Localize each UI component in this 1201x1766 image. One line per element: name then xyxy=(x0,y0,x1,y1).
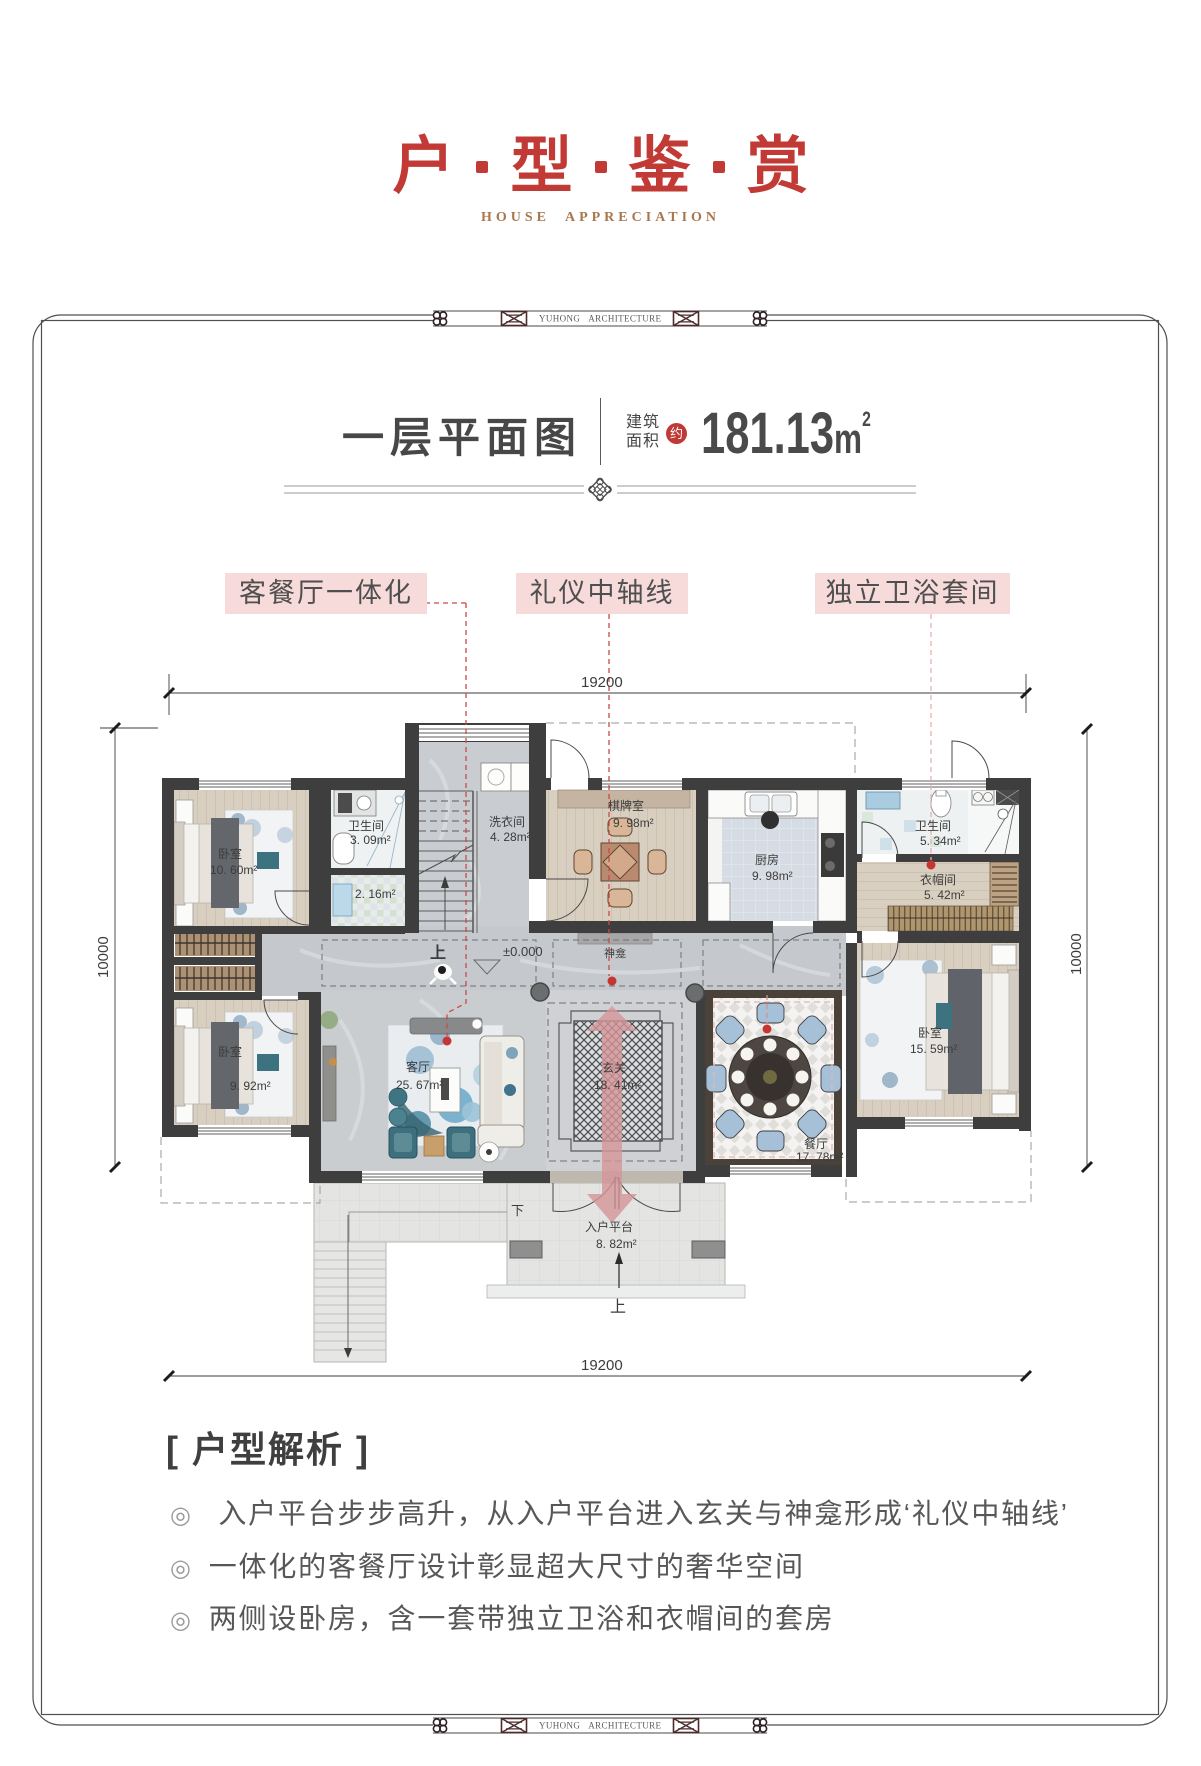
svg-text:餐厅: 餐厅 xyxy=(804,1136,828,1151)
svg-text:9. 92m²: 9. 92m² xyxy=(230,1079,271,1093)
svg-text:衣帽间: 衣帽间 xyxy=(920,872,956,887)
svg-text:10000: 10000 xyxy=(95,936,112,978)
svg-text:4. 28m²: 4. 28m² xyxy=(490,830,531,844)
svg-text:8. 82m²: 8. 82m² xyxy=(596,1237,637,1251)
svg-text:9. 98m²: 9. 98m² xyxy=(752,869,793,883)
svg-text:厨房: 厨房 xyxy=(755,852,779,867)
svg-text:10000: 10000 xyxy=(1068,933,1085,975)
svg-text:上: 上 xyxy=(610,1298,626,1316)
svg-text:玄关: 玄关 xyxy=(602,1060,626,1075)
svg-text:入户平台: 入户平台 xyxy=(585,1219,633,1234)
svg-text:19200: 19200 xyxy=(581,674,623,691)
svg-text:卧室: 卧室 xyxy=(218,846,242,861)
svg-text:9. 98m²: 9. 98m² xyxy=(613,816,654,830)
svg-text:卫生间: 卫生间 xyxy=(348,819,384,833)
svg-text:2. 16m²: 2. 16m² xyxy=(355,887,396,901)
svg-text:棋牌室: 棋牌室 xyxy=(608,798,644,813)
svg-text:25. 67m²: 25. 67m² xyxy=(396,1078,443,1092)
svg-text:洗衣间: 洗衣间 xyxy=(489,814,525,829)
svg-text:卫生间: 卫生间 xyxy=(915,819,951,833)
svg-text:卧室: 卧室 xyxy=(218,1044,242,1059)
svg-text:上: 上 xyxy=(430,944,446,962)
svg-text:下: 下 xyxy=(511,1203,524,1218)
svg-text:±0.000: ±0.000 xyxy=(503,944,543,959)
svg-text:10. 60m²: 10. 60m² xyxy=(210,863,257,877)
svg-text:神龛: 神龛 xyxy=(604,946,626,960)
svg-text:19200: 19200 xyxy=(581,1357,623,1374)
svg-text:18. 41m²: 18. 41m² xyxy=(594,1078,641,1092)
svg-text:卧室: 卧室 xyxy=(918,1025,942,1040)
svg-text:客厅: 客厅 xyxy=(406,1059,430,1074)
svg-text:15. 59m²: 15. 59m² xyxy=(910,1042,957,1056)
svg-text:3. 09m²: 3. 09m² xyxy=(350,833,391,847)
svg-text:5. 42m²: 5. 42m² xyxy=(924,888,965,902)
svg-text:17. 78m²: 17. 78m² xyxy=(796,1150,843,1164)
svg-text:5. 34m²: 5. 34m² xyxy=(920,834,961,848)
